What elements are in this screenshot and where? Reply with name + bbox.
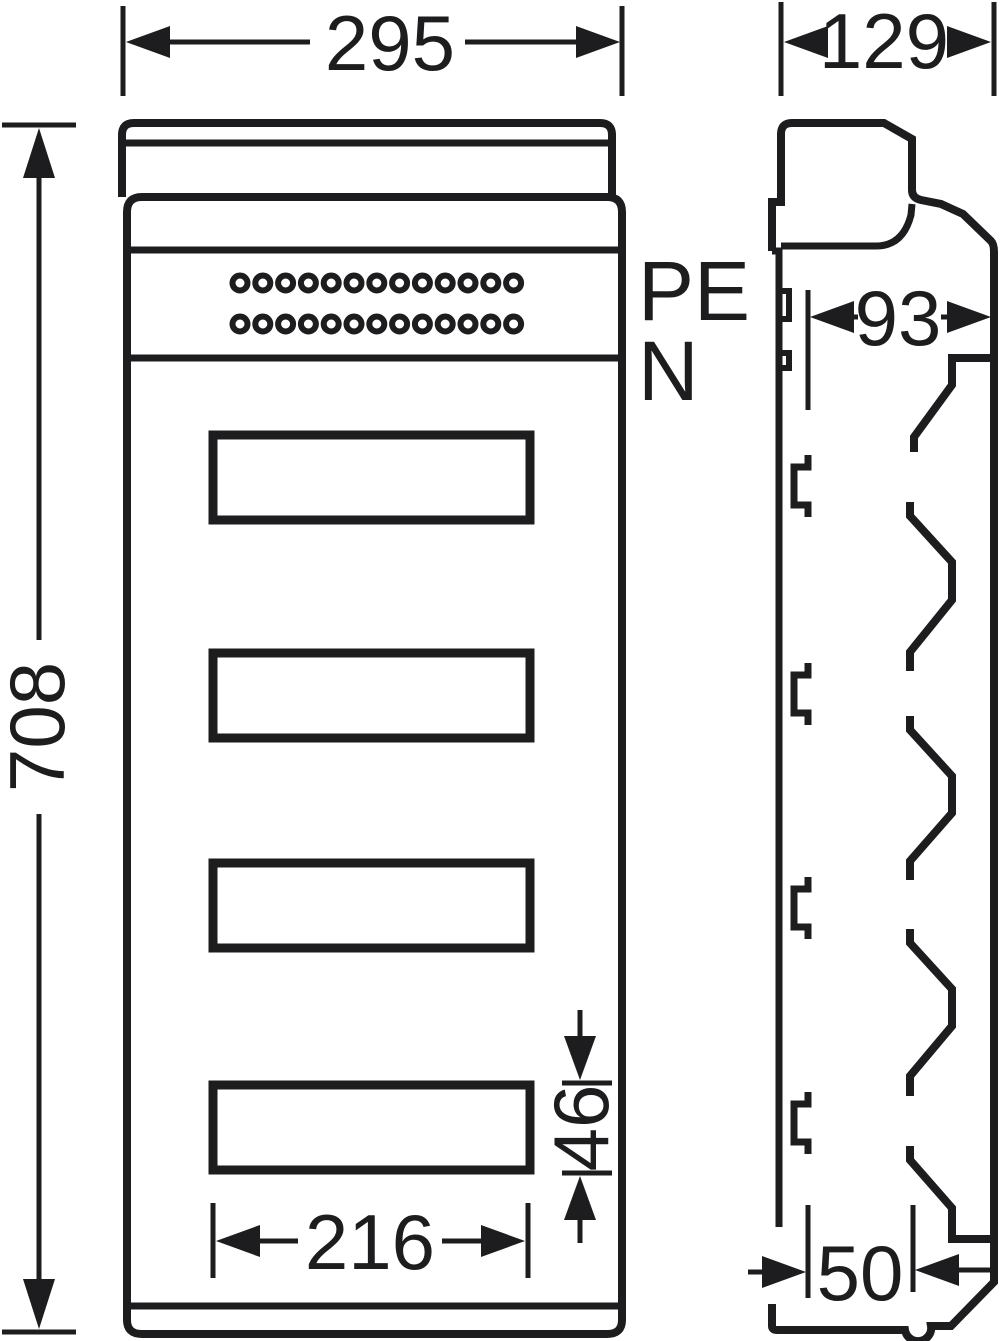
side-left-edge xyxy=(772,251,779,1227)
arrowhead-left-pointing xyxy=(915,1254,959,1286)
terminal-hole xyxy=(278,317,293,332)
dimension-window-height: 46 xyxy=(537,1010,625,1243)
flange-tooth-3 xyxy=(910,716,952,880)
module-window-1 xyxy=(213,435,530,520)
side-left-tab-1 xyxy=(779,291,789,319)
terminal-hole xyxy=(369,317,384,332)
terminal-row-n xyxy=(233,317,522,332)
terminal-hole xyxy=(369,276,384,291)
terminal-hole xyxy=(461,317,476,332)
arrowhead-left xyxy=(216,1225,260,1257)
arrowhead-up xyxy=(564,1176,596,1220)
dimension-value-708: 708 xyxy=(0,662,81,792)
dimension-value-50: 50 xyxy=(817,1229,904,1317)
terminal-hole xyxy=(506,276,521,291)
module-window-4 xyxy=(213,1085,530,1170)
dimension-value-46: 46 xyxy=(537,1085,625,1172)
dimension-value-93: 93 xyxy=(855,274,942,362)
arrowhead-right xyxy=(481,1225,525,1257)
arrowhead-top xyxy=(23,128,55,178)
arrowhead-left xyxy=(810,301,854,333)
terminal-hole xyxy=(415,276,430,291)
dimension-drawing-svg: PE N 295 xyxy=(0,0,1000,1341)
front-view: PE N xyxy=(122,123,750,1334)
dimension-value-295: 295 xyxy=(325,0,455,87)
dimension-value-216: 216 xyxy=(305,1198,435,1286)
terminal-row-pe xyxy=(233,276,522,291)
front-top-cap-outline xyxy=(122,123,612,197)
arrowhead-down xyxy=(564,1036,596,1080)
terminal-hole xyxy=(483,317,498,332)
terminal-hole xyxy=(347,276,362,291)
dimension-value-129: 129 xyxy=(819,0,949,85)
arrowhead-right xyxy=(947,301,991,333)
flange-tooth-top xyxy=(914,358,991,452)
terminal-hole xyxy=(233,317,248,332)
terminal-hole xyxy=(255,276,270,291)
arrowhead-right xyxy=(947,26,991,58)
arrowhead-bottom xyxy=(23,1279,55,1329)
terminal-hole xyxy=(483,276,498,291)
dimension-side-depth: 129 xyxy=(781,0,994,96)
n-terminal-label: N xyxy=(638,324,699,418)
terminal-hole xyxy=(324,317,339,332)
terminal-hole xyxy=(278,276,293,291)
terminal-hole xyxy=(461,276,476,291)
terminal-hole xyxy=(255,317,270,332)
dimension-front-width: 295 xyxy=(123,0,622,96)
dimension-base-depth: 50 xyxy=(748,1205,993,1317)
terminal-hole xyxy=(392,317,407,332)
technical-drawing-canvas: PE N 295 xyxy=(0,0,1000,1341)
terminal-hole xyxy=(392,276,407,291)
terminal-hole xyxy=(347,317,362,332)
terminal-hole xyxy=(324,276,339,291)
terminal-hole xyxy=(438,276,453,291)
rear-clip-4 xyxy=(794,1092,808,1154)
dimension-front-depth: 93 xyxy=(808,274,991,410)
module-window-3 xyxy=(213,863,530,948)
flange-tooth-bottom xyxy=(910,1146,991,1239)
terminal-hole xyxy=(438,317,453,332)
module-window-2 xyxy=(213,653,530,738)
terminal-hole xyxy=(233,276,248,291)
arrowhead-left xyxy=(126,26,170,58)
terminal-hole xyxy=(301,276,316,291)
terminal-hole xyxy=(415,317,430,332)
terminal-hole xyxy=(301,317,316,332)
dimension-window-width: 216 xyxy=(213,1198,528,1286)
rear-clip-3 xyxy=(794,877,808,939)
arrowhead-right-pointing xyxy=(762,1256,806,1288)
dimension-front-height: 708 xyxy=(0,125,81,1332)
rear-clip-2 xyxy=(794,663,808,725)
rear-clip-1 xyxy=(794,455,808,517)
flange-tooth-2 xyxy=(910,502,952,671)
side-left-tab-2 xyxy=(779,353,789,368)
terminal-hole xyxy=(506,317,521,332)
flange-tooth-4 xyxy=(910,929,952,1096)
side-cover-inner-line xyxy=(781,204,912,246)
arrowhead-right xyxy=(576,26,620,58)
